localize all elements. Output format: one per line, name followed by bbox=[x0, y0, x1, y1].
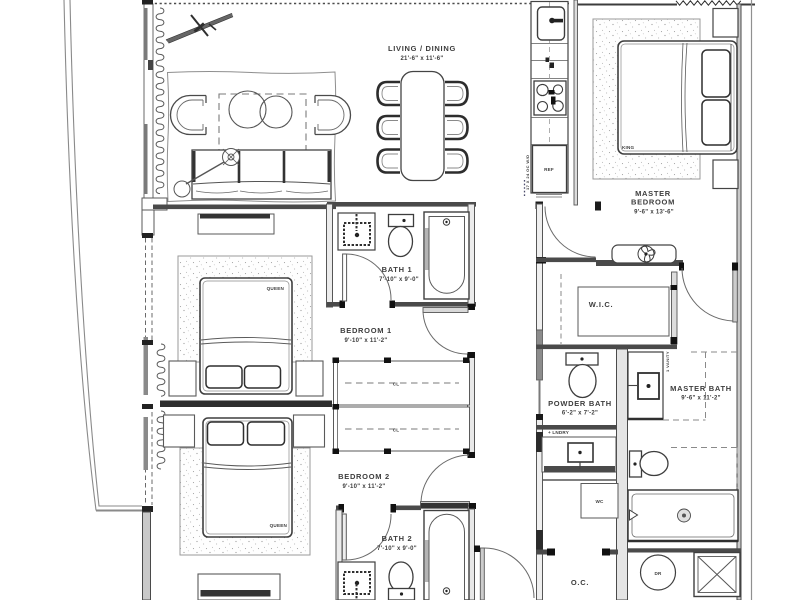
svg-text:O.C.: O.C. bbox=[571, 578, 589, 587]
svg-text:BEDROOM: BEDROOM bbox=[631, 198, 675, 207]
svg-text:QUEEN: QUEEN bbox=[270, 523, 288, 528]
svg-text:9'-10" x 11'-2": 9'-10" x 11'-2" bbox=[344, 338, 387, 344]
svg-text:W.I.C.: W.I.C. bbox=[589, 300, 614, 309]
svg-text:BEDROOM 2: BEDROOM 2 bbox=[338, 472, 390, 481]
svg-text:6'-2" x 7'-2": 6'-2" x 7'-2" bbox=[562, 411, 598, 417]
svg-text:QUEEN: QUEEN bbox=[267, 286, 285, 291]
svg-text:DR: DR bbox=[654, 571, 662, 576]
svg-text:7'-10" x 9'-0": 7'-10" x 9'-0" bbox=[379, 277, 419, 283]
svg-text:LIVING / DINING: LIVING / DINING bbox=[388, 44, 456, 53]
svg-text:BATH 2: BATH 2 bbox=[382, 534, 413, 543]
svg-text:9'-10" x 11'-2": 9'-10" x 11'-2" bbox=[342, 484, 385, 490]
svg-text:BATH 1: BATH 1 bbox=[382, 265, 413, 274]
svg-text:REF: REF bbox=[544, 167, 554, 172]
svg-text:1 VANITY: 1 VANITY bbox=[665, 351, 670, 372]
svg-text:KING: KING bbox=[622, 145, 635, 150]
svg-text:CL: CL bbox=[393, 382, 400, 387]
svg-text:BEDROOM 1: BEDROOM 1 bbox=[340, 326, 392, 335]
svg-text:7'-10" x 9'-0": 7'-10" x 9'-0" bbox=[377, 546, 417, 552]
svg-text:+ LNDRY: + LNDRY bbox=[548, 430, 569, 435]
svg-text:21'-6" x 11'-6": 21'-6" x 11'-6" bbox=[400, 56, 443, 62]
svg-text:9'-6" x 13'-6": 9'-6" x 13'-6" bbox=[634, 210, 674, 216]
svg-text:CL: CL bbox=[393, 428, 400, 433]
svg-text:17 X 24 OC W/D: 17 X 24 OC W/D bbox=[525, 155, 530, 190]
svg-text:WC: WC bbox=[595, 499, 604, 504]
svg-text:9'-6" x 11'-2": 9'-6" x 11'-2" bbox=[681, 396, 720, 402]
svg-text:POWDER BATH: POWDER BATH bbox=[548, 399, 612, 408]
svg-text:MASTER BATH: MASTER BATH bbox=[670, 384, 732, 393]
